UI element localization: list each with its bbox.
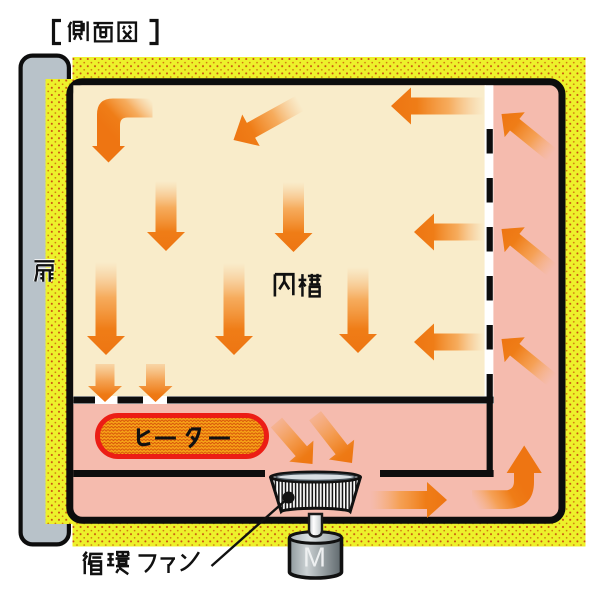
- svg-text:M: M: [303, 542, 326, 573]
